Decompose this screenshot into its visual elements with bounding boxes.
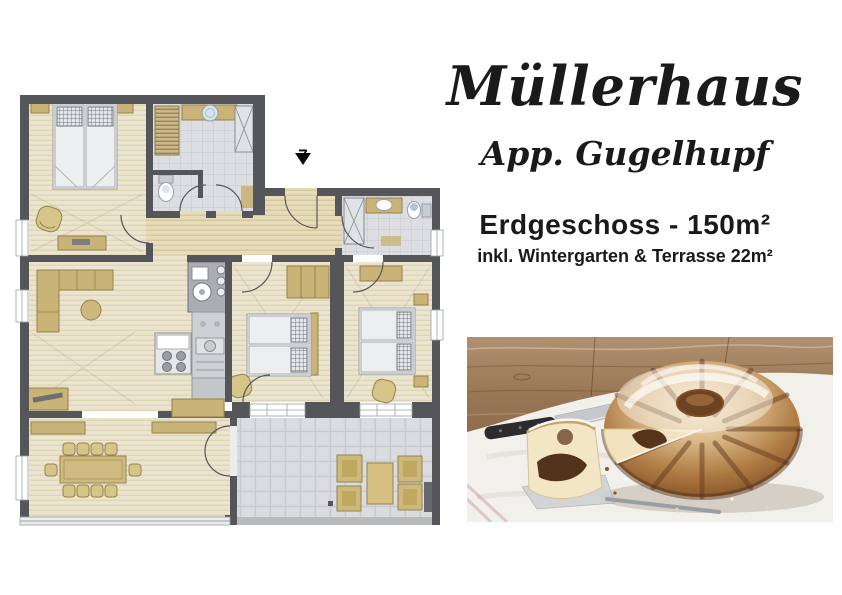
bundt-cake <box>604 361 800 497</box>
pillow <box>88 107 113 126</box>
entrance-marker: 7 <box>288 146 318 182</box>
cake-photo-drawing <box>467 337 833 522</box>
sauna-bench <box>155 106 179 155</box>
pillow <box>397 344 411 370</box>
hall-sideboard <box>172 399 224 417</box>
pouf <box>81 300 101 320</box>
cake-photo <box>467 337 833 522</box>
floor-info: Erdgeschoss - 150m² <box>432 209 818 241</box>
sideboard <box>31 422 85 434</box>
page-subtitle: App. Gugelhupf <box>432 134 818 173</box>
floor-plan-drawing <box>15 86 445 527</box>
pillow <box>397 312 411 338</box>
entrance-arrow-icon <box>295 153 311 182</box>
page-title: Müllerhaus <box>432 54 818 118</box>
cake-slice <box>527 420 602 499</box>
flyer-page: { "header": { "title": "Müllerhaus", "su… <box>0 0 842 595</box>
washbasin <box>202 105 218 121</box>
floor-plan: 7 <box>15 86 445 527</box>
header: Müllerhaus App. Gugelhupf Erdgeschoss - … <box>432 54 818 267</box>
glass-front <box>20 517 432 525</box>
bath-mat <box>241 186 253 208</box>
wardrobe <box>287 266 329 298</box>
pillow <box>291 348 307 372</box>
washbasin <box>376 200 392 211</box>
bath-mat <box>381 236 401 246</box>
door-mat <box>424 482 433 512</box>
extras-info: inkl. Wintergarten & Terrasse 22m² <box>432 246 818 267</box>
sideboard <box>152 422 216 433</box>
pillow <box>291 318 307 342</box>
pillow <box>57 107 82 126</box>
patio-table <box>367 463 393 504</box>
